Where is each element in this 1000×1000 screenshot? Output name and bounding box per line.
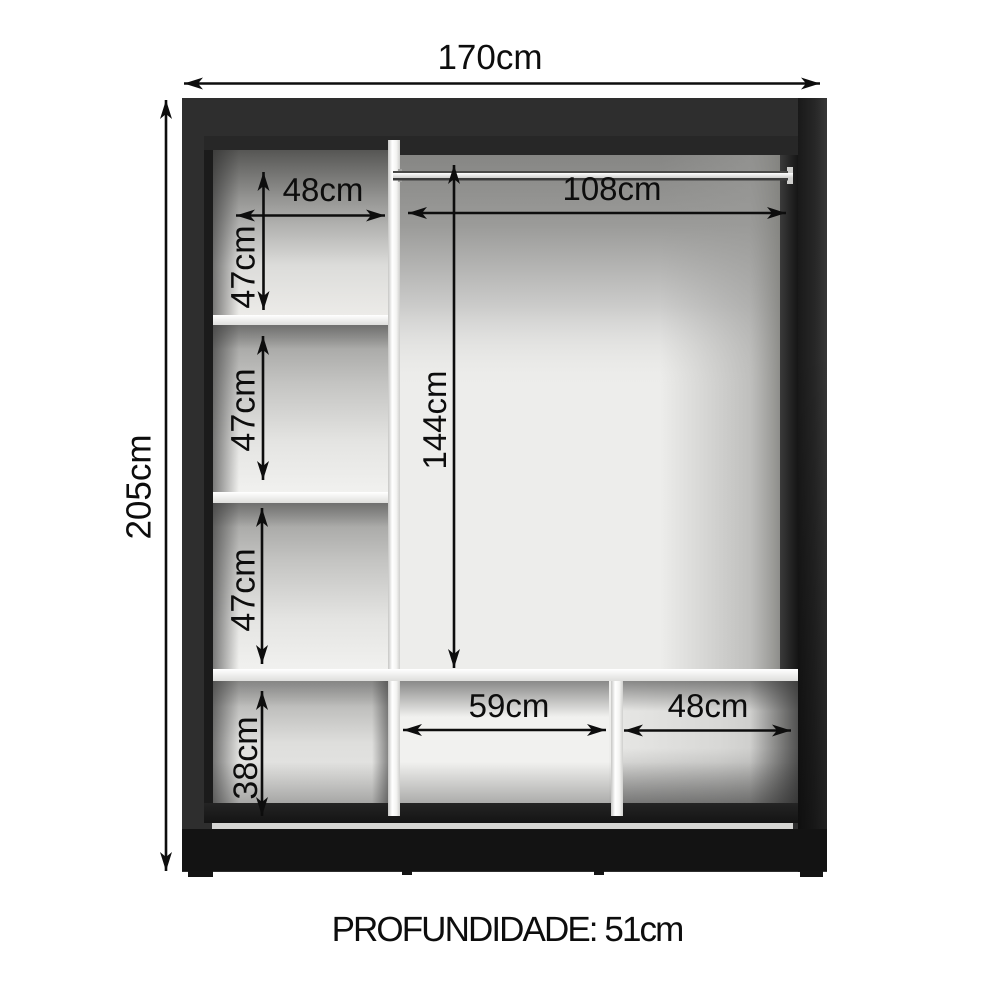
svg-text:47cm: 47cm xyxy=(225,225,263,308)
svg-text:48cm: 48cm xyxy=(668,687,749,724)
svg-text:38cm: 38cm xyxy=(227,716,265,799)
svg-text:59cm: 59cm xyxy=(469,687,550,724)
svg-text:48cm: 48cm xyxy=(283,171,364,208)
svg-text:47cm: 47cm xyxy=(225,368,263,451)
svg-text:108cm: 108cm xyxy=(562,170,661,207)
svg-text:PROFUNDIDADE: 51cm: PROFUNDIDADE: 51cm xyxy=(332,910,683,949)
svg-text:144cm: 144cm xyxy=(416,370,453,469)
svg-text:170cm: 170cm xyxy=(437,38,542,77)
svg-text:47cm: 47cm xyxy=(225,548,263,631)
svg-text:205cm: 205cm xyxy=(120,434,159,539)
